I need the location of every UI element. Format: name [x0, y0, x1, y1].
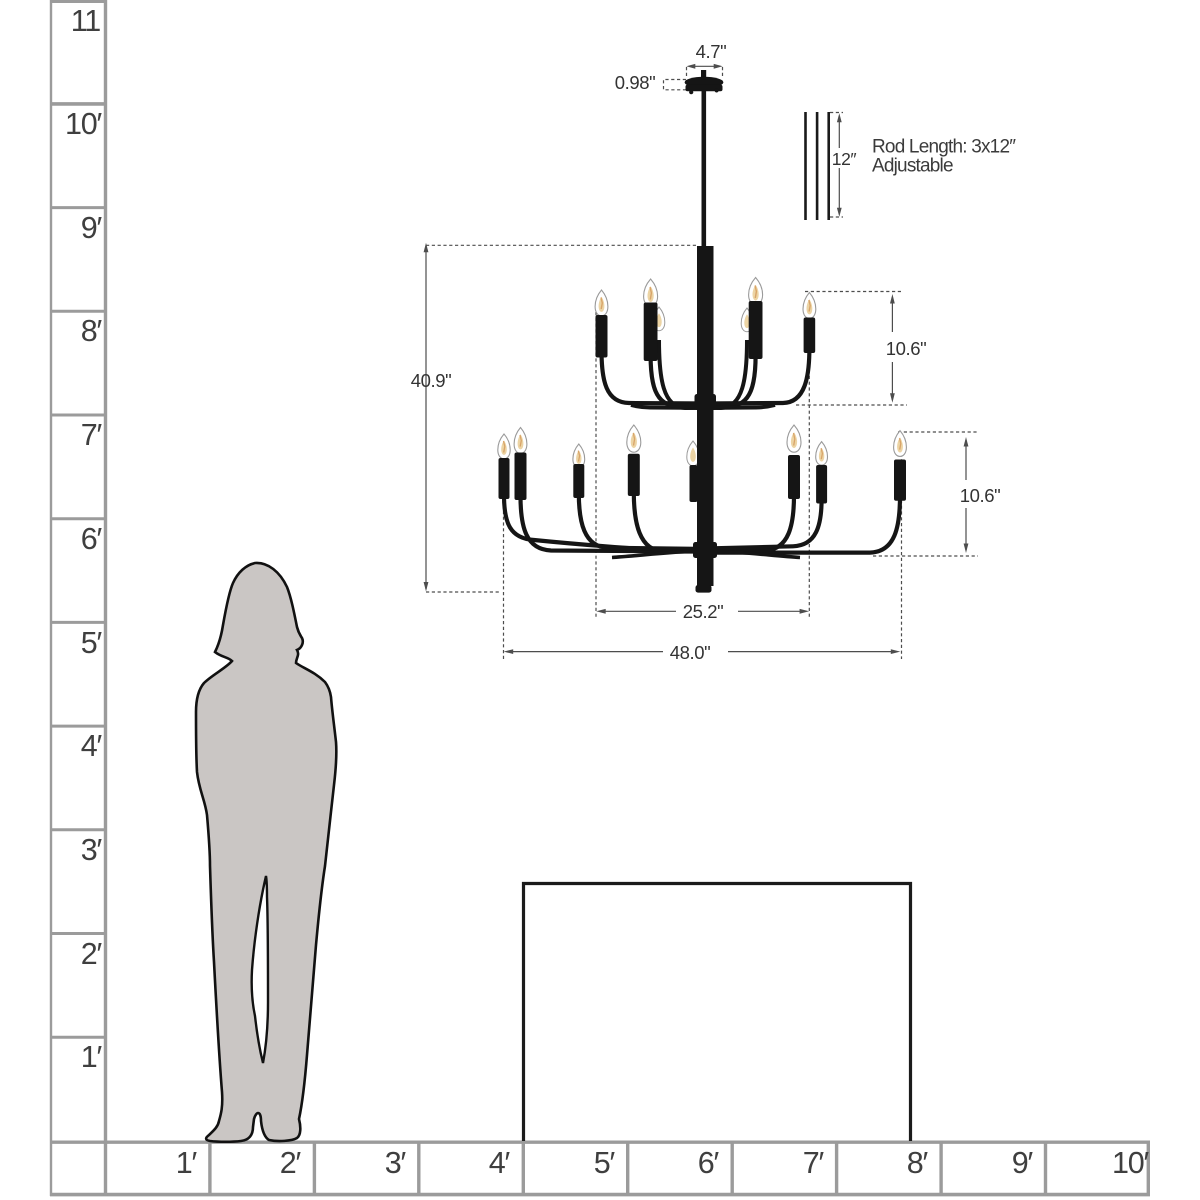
svg-text:1′: 1′ [176, 1146, 198, 1180]
svg-text:3′: 3′ [385, 1146, 407, 1180]
svg-text:7′: 7′ [803, 1146, 825, 1180]
svg-text:10′: 10′ [65, 107, 103, 141]
svg-text:2′: 2′ [280, 1146, 302, 1180]
svg-text:10.6": 10.6" [886, 338, 927, 359]
svg-text:6′: 6′ [698, 1146, 720, 1180]
svg-text:48.0": 48.0" [670, 642, 711, 663]
svg-text:40.9": 40.9" [411, 370, 452, 391]
svg-text:10′: 10′ [1112, 1146, 1150, 1180]
svg-text:4′: 4′ [81, 729, 103, 763]
svg-text:6′: 6′ [81, 522, 103, 556]
svg-text:2′: 2′ [81, 937, 103, 971]
svg-text:1′: 1′ [81, 1040, 103, 1074]
svg-text:4′: 4′ [489, 1146, 511, 1180]
svg-text:10.6": 10.6" [960, 485, 1001, 506]
svg-text:7′: 7′ [81, 418, 103, 452]
svg-text:5′: 5′ [594, 1146, 616, 1180]
svg-text:4.7": 4.7" [696, 41, 727, 62]
svg-text:12″: 12″ [832, 149, 857, 169]
svg-text:5′: 5′ [81, 626, 103, 660]
svg-text:Adjustable: Adjustable [872, 156, 953, 177]
svg-text:Rod Length: 3x12″: Rod Length: 3x12″ [872, 137, 1016, 158]
svg-text:9′: 9′ [81, 211, 103, 245]
svg-text:3′: 3′ [81, 833, 103, 867]
svg-text:8′: 8′ [907, 1146, 929, 1180]
svg-text:11: 11 [71, 4, 100, 38]
svg-text:0.98": 0.98" [615, 72, 656, 93]
svg-text:25.2": 25.2" [683, 601, 724, 622]
svg-text:8′: 8′ [81, 314, 103, 348]
svg-text:9′: 9′ [1012, 1146, 1034, 1180]
